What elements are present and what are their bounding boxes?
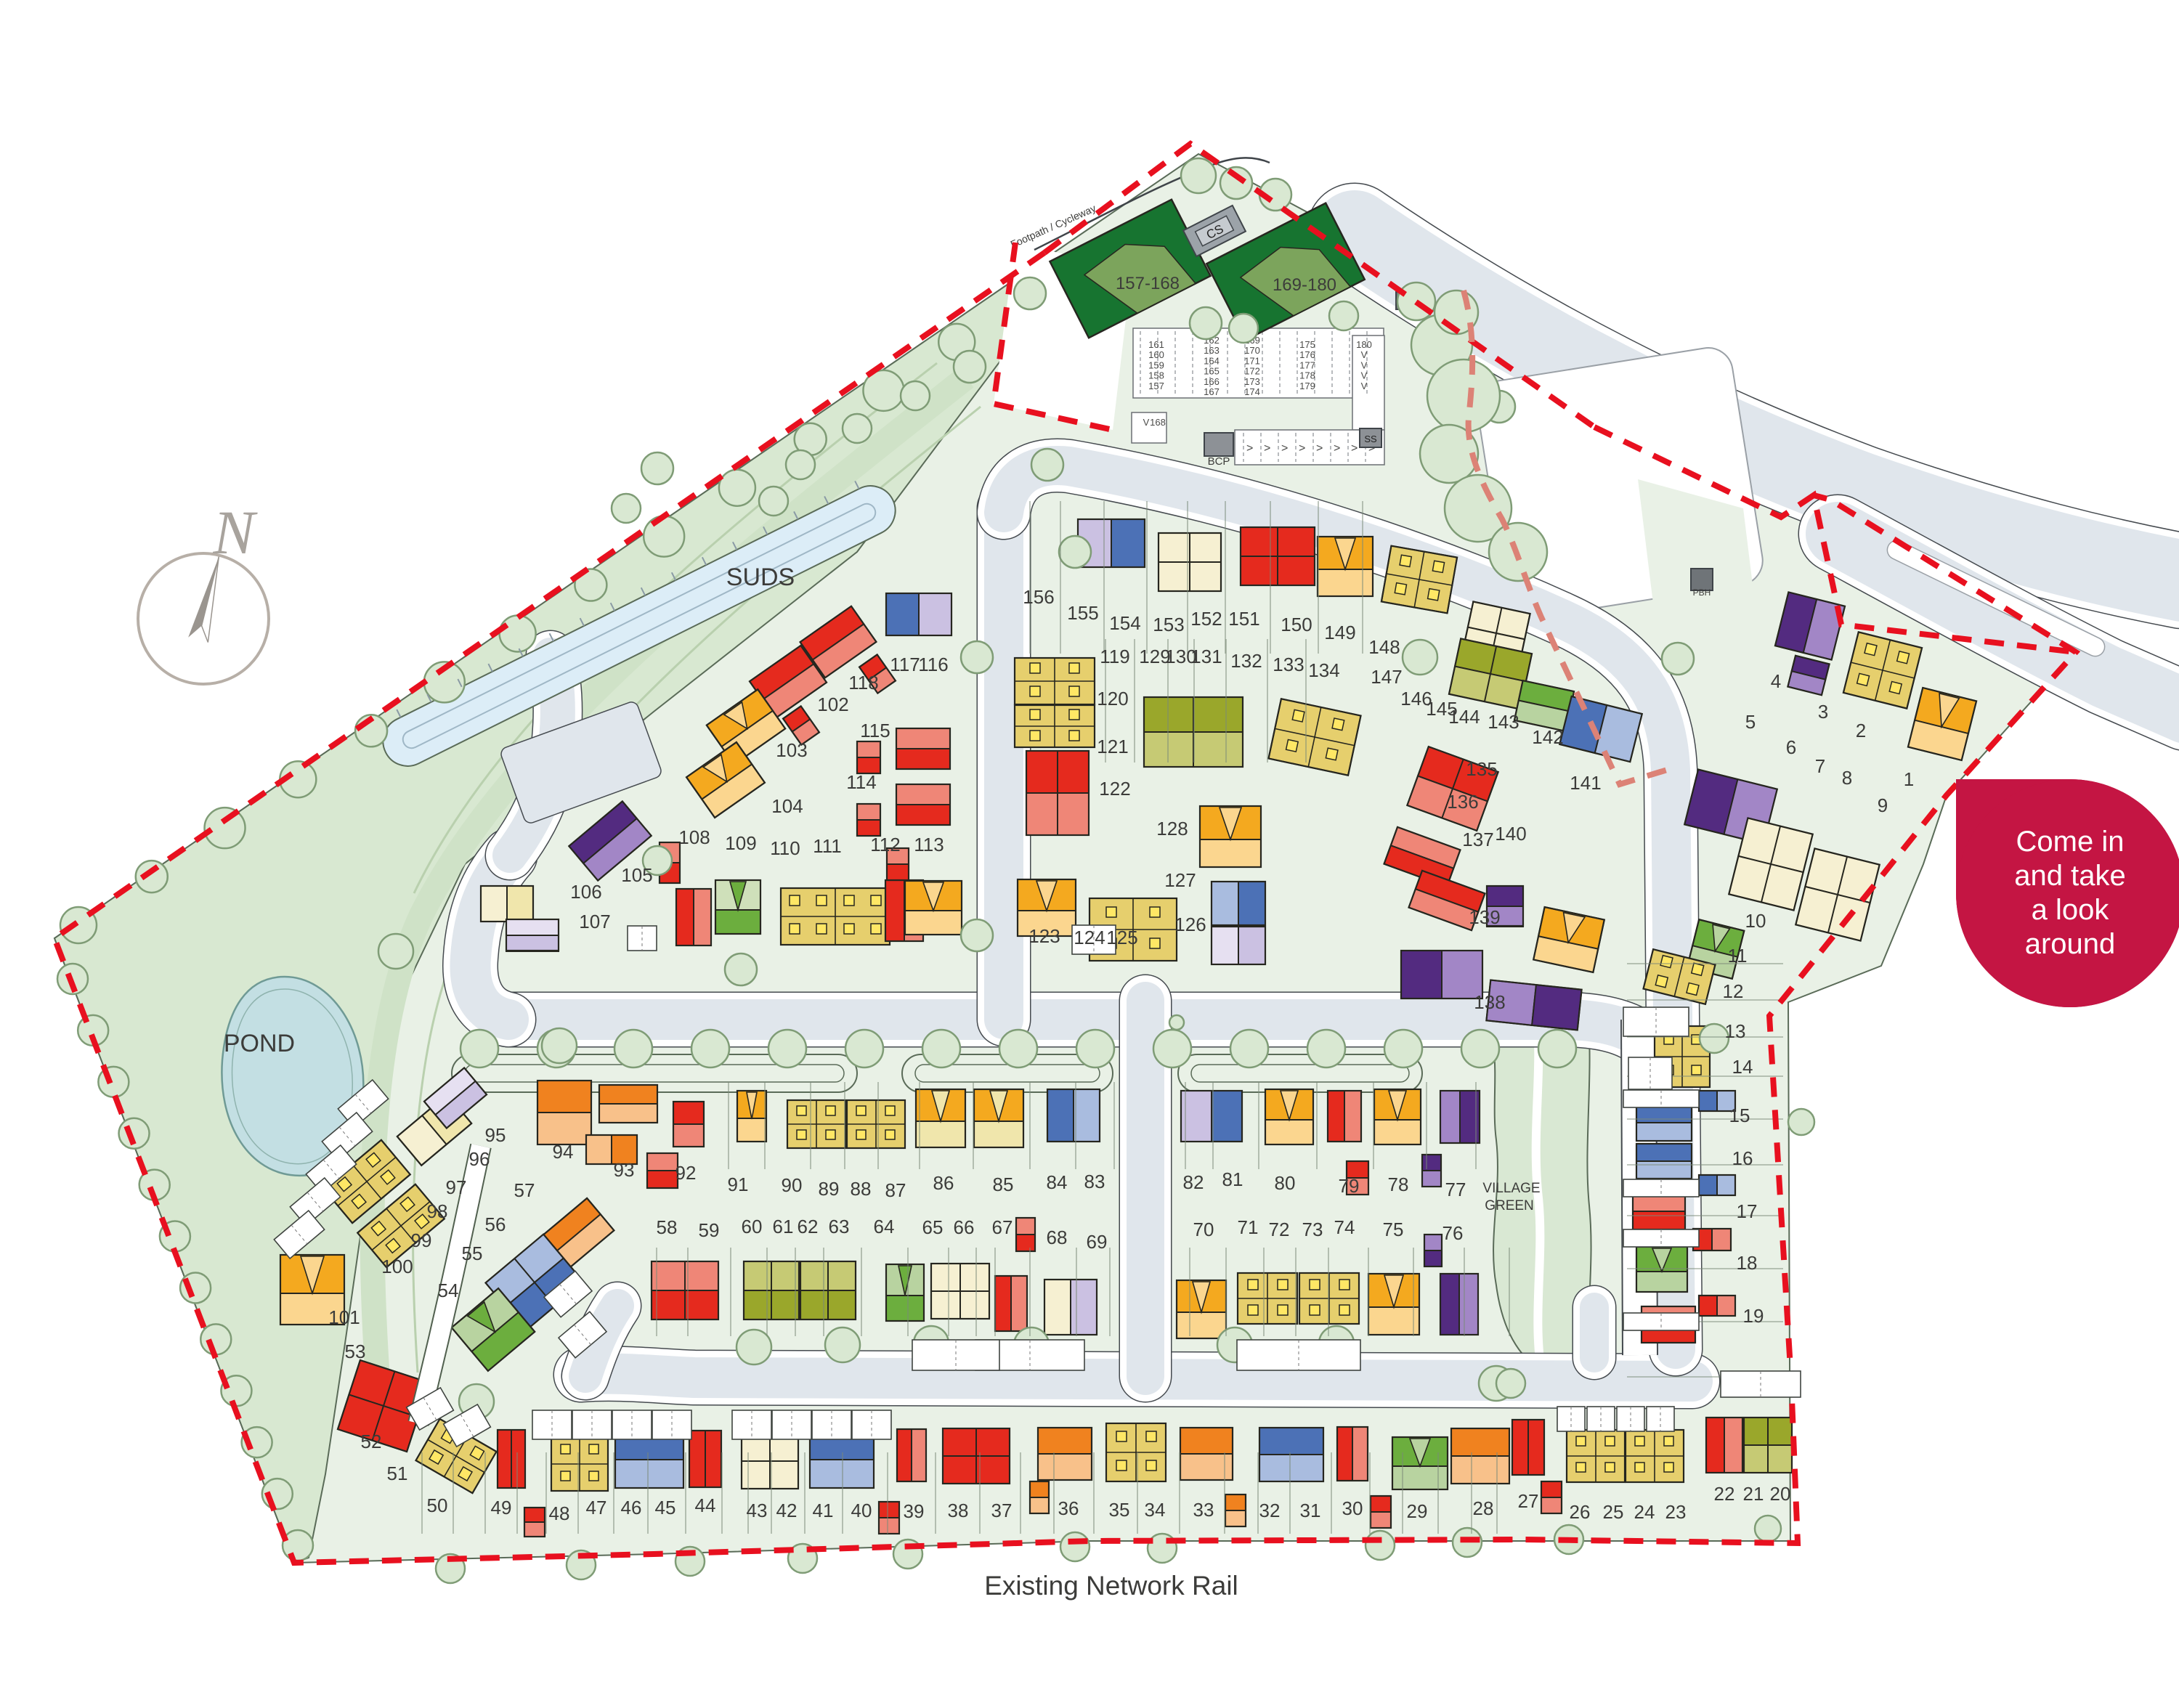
svg-text:N: N — [212, 497, 258, 567]
svg-text:100: 100 — [381, 1256, 413, 1277]
svg-text:97: 97 — [446, 1176, 467, 1198]
svg-text:27: 27 — [1518, 1490, 1539, 1512]
svg-text:54: 54 — [438, 1280, 459, 1301]
svg-text:>: > — [1299, 442, 1305, 455]
svg-text:90: 90 — [782, 1174, 803, 1196]
svg-text:96: 96 — [469, 1148, 490, 1170]
svg-text:56: 56 — [485, 1213, 506, 1235]
svg-text:122: 122 — [1099, 778, 1130, 800]
svg-text:34: 34 — [1145, 1499, 1166, 1521]
svg-text:148: 148 — [1368, 636, 1400, 658]
svg-text:168: 168 — [1150, 417, 1166, 428]
svg-text:12: 12 — [1723, 980, 1744, 1002]
svg-text:138: 138 — [1474, 991, 1505, 1013]
svg-text:107: 107 — [579, 911, 610, 932]
svg-text:116: 116 — [918, 654, 948, 675]
svg-text:126: 126 — [1174, 914, 1206, 935]
svg-text:103: 103 — [776, 739, 807, 761]
svg-text:43: 43 — [747, 1500, 768, 1521]
svg-text:52: 52 — [361, 1431, 382, 1452]
svg-text:147: 147 — [1371, 666, 1402, 688]
svg-text:25: 25 — [1603, 1501, 1624, 1523]
svg-text:13: 13 — [1725, 1020, 1746, 1042]
svg-text:>: > — [1281, 442, 1288, 455]
svg-text:18: 18 — [1737, 1252, 1758, 1274]
svg-text:99: 99 — [411, 1229, 432, 1251]
svg-text:>: > — [1264, 442, 1270, 455]
svg-text:134: 134 — [1308, 659, 1339, 681]
svg-text:163: 163 — [1204, 345, 1220, 356]
svg-text:26: 26 — [1570, 1501, 1591, 1523]
svg-text:98: 98 — [427, 1200, 448, 1222]
svg-text:23: 23 — [1665, 1501, 1687, 1523]
svg-text:64: 64 — [874, 1216, 895, 1237]
svg-text:146: 146 — [1400, 688, 1432, 709]
svg-text:105: 105 — [621, 864, 652, 886]
svg-text:83: 83 — [1084, 1171, 1105, 1192]
svg-text:71: 71 — [1238, 1216, 1259, 1238]
svg-text:GREEN: GREEN — [1485, 1198, 1534, 1213]
svg-text:110: 110 — [770, 837, 800, 859]
svg-text:135: 135 — [1466, 758, 1497, 780]
svg-text:31: 31 — [1300, 1500, 1321, 1521]
svg-text:19: 19 — [1743, 1305, 1764, 1327]
svg-text:178: 178 — [1299, 370, 1315, 381]
svg-text:174: 174 — [1244, 386, 1260, 397]
svg-text:131: 131 — [1190, 646, 1222, 667]
svg-text:87: 87 — [885, 1179, 906, 1201]
svg-text:>: > — [1334, 442, 1340, 455]
svg-text:63: 63 — [829, 1216, 850, 1237]
svg-text:and take: and take — [2014, 860, 2125, 892]
svg-text:91: 91 — [728, 1174, 749, 1195]
svg-text:9: 9 — [1878, 794, 1888, 816]
svg-text:101: 101 — [328, 1306, 360, 1328]
svg-text:179: 179 — [1299, 381, 1315, 391]
svg-text:53: 53 — [345, 1341, 366, 1362]
svg-text:154: 154 — [1109, 612, 1140, 634]
svg-text:118: 118 — [848, 672, 878, 694]
svg-text:160: 160 — [1148, 349, 1164, 360]
svg-text:58: 58 — [657, 1216, 678, 1238]
svg-text:1: 1 — [1904, 768, 1914, 790]
svg-text:66: 66 — [954, 1216, 975, 1238]
svg-text:89: 89 — [819, 1178, 840, 1200]
svg-text:2: 2 — [1856, 720, 1866, 741]
svg-text:V: V — [1361, 349, 1368, 360]
svg-text:180: 180 — [1356, 339, 1372, 350]
svg-text:72: 72 — [1269, 1219, 1290, 1240]
svg-text:177: 177 — [1299, 359, 1315, 370]
svg-text:140: 140 — [1495, 823, 1526, 845]
svg-text:152: 152 — [1190, 608, 1222, 630]
svg-text:104: 104 — [771, 795, 803, 817]
svg-text:45: 45 — [655, 1497, 676, 1518]
svg-text:>: > — [1316, 442, 1323, 455]
svg-text:21: 21 — [1743, 1483, 1764, 1505]
svg-text:>: > — [1351, 442, 1358, 455]
svg-text:a look: a look — [2032, 894, 2110, 926]
svg-text:74: 74 — [1334, 1216, 1355, 1238]
svg-text:108: 108 — [678, 826, 710, 848]
svg-text:84: 84 — [1047, 1171, 1068, 1193]
svg-text:30: 30 — [1342, 1497, 1363, 1519]
svg-text:150: 150 — [1281, 614, 1312, 635]
svg-text:39: 39 — [904, 1500, 925, 1522]
svg-text:125: 125 — [1106, 927, 1137, 948]
svg-text:170: 170 — [1244, 345, 1260, 356]
svg-text:POND: POND — [224, 1030, 295, 1057]
svg-text:156: 156 — [1023, 586, 1054, 608]
svg-text:117: 117 — [890, 654, 920, 675]
svg-text:V: V — [1143, 417, 1150, 428]
svg-text:109: 109 — [725, 832, 756, 854]
svg-text:82: 82 — [1183, 1171, 1204, 1193]
svg-text:137: 137 — [1462, 829, 1493, 850]
svg-text:Come in: Come in — [2016, 826, 2125, 858]
svg-text:151: 151 — [1228, 608, 1259, 630]
svg-text:29: 29 — [1407, 1500, 1428, 1522]
svg-text:60: 60 — [742, 1216, 763, 1237]
svg-text:38: 38 — [948, 1500, 969, 1521]
svg-text:173: 173 — [1244, 376, 1260, 387]
svg-text:164: 164 — [1204, 355, 1220, 366]
svg-text:61: 61 — [773, 1216, 794, 1237]
svg-text:86: 86 — [933, 1172, 954, 1194]
svg-text:85: 85 — [993, 1174, 1014, 1195]
svg-text:128: 128 — [1156, 818, 1188, 839]
svg-text:155: 155 — [1067, 602, 1098, 624]
svg-text:172: 172 — [1244, 366, 1260, 377]
svg-text:62: 62 — [798, 1216, 819, 1237]
svg-text:5: 5 — [1745, 711, 1756, 733]
svg-text:65: 65 — [922, 1216, 944, 1238]
svg-text:V: V — [1361, 370, 1368, 381]
svg-text:159: 159 — [1148, 359, 1164, 370]
svg-text:11: 11 — [1728, 945, 1748, 967]
svg-text:124: 124 — [1074, 927, 1105, 948]
svg-text:22: 22 — [1714, 1483, 1735, 1505]
svg-text:166: 166 — [1204, 376, 1220, 387]
svg-text:49: 49 — [491, 1497, 512, 1518]
svg-text:33: 33 — [1193, 1499, 1214, 1521]
svg-text:78: 78 — [1388, 1174, 1409, 1195]
svg-text:165: 165 — [1204, 366, 1220, 377]
svg-text:111: 111 — [813, 835, 842, 857]
svg-text:120: 120 — [1097, 688, 1128, 709]
svg-text:V: V — [1361, 381, 1368, 391]
svg-text:42: 42 — [776, 1500, 798, 1521]
svg-text:102: 102 — [817, 694, 848, 715]
svg-text:79: 79 — [1339, 1175, 1360, 1197]
svg-text:94: 94 — [553, 1141, 574, 1163]
svg-text:4: 4 — [1771, 670, 1781, 692]
svg-text:95: 95 — [485, 1124, 506, 1146]
svg-text:20: 20 — [1770, 1483, 1791, 1505]
svg-text:121: 121 — [1097, 736, 1128, 757]
svg-text:112: 112 — [870, 834, 900, 855]
svg-text:37: 37 — [991, 1500, 1013, 1521]
svg-text:169-180: 169-180 — [1273, 275, 1336, 295]
svg-text:119: 119 — [1100, 646, 1129, 667]
svg-text:88: 88 — [851, 1178, 872, 1200]
svg-text:35: 35 — [1109, 1499, 1130, 1521]
svg-text:153: 153 — [1153, 614, 1184, 635]
svg-text:75: 75 — [1383, 1219, 1404, 1240]
svg-text:48: 48 — [549, 1502, 570, 1524]
svg-text:55: 55 — [462, 1243, 483, 1264]
svg-text:41: 41 — [813, 1500, 834, 1521]
svg-text:17: 17 — [1737, 1200, 1758, 1222]
svg-text:139: 139 — [1469, 906, 1500, 928]
svg-text:149: 149 — [1324, 622, 1355, 643]
svg-text:115: 115 — [860, 720, 890, 741]
svg-text:113: 113 — [914, 834, 944, 855]
svg-text:6: 6 — [1786, 736, 1796, 758]
svg-text:V: V — [1361, 359, 1368, 370]
svg-text:24: 24 — [1634, 1501, 1655, 1523]
svg-text:51: 51 — [387, 1463, 408, 1484]
svg-text:161: 161 — [1148, 339, 1164, 350]
svg-text:167: 167 — [1204, 386, 1220, 397]
svg-text:32: 32 — [1259, 1500, 1281, 1521]
svg-text:176: 176 — [1299, 349, 1315, 360]
svg-text:143: 143 — [1488, 711, 1519, 733]
svg-text:157: 157 — [1148, 381, 1164, 391]
svg-text:158: 158 — [1148, 370, 1164, 381]
svg-text:67: 67 — [992, 1216, 1013, 1238]
svg-text:7: 7 — [1815, 755, 1825, 777]
svg-text:80: 80 — [1275, 1172, 1296, 1194]
svg-text:142: 142 — [1532, 726, 1563, 748]
svg-text:127: 127 — [1164, 869, 1196, 891]
svg-text:50: 50 — [427, 1494, 448, 1516]
svg-text:81: 81 — [1222, 1168, 1243, 1190]
svg-text:Existing Network Rail: Existing Network Rail — [984, 1571, 1238, 1601]
svg-text:73: 73 — [1302, 1219, 1323, 1240]
svg-text:>: > — [1246, 442, 1253, 455]
svg-text:47: 47 — [586, 1497, 607, 1518]
svg-text:SUDS: SUDS — [726, 564, 795, 591]
svg-text:3: 3 — [1818, 701, 1828, 723]
svg-text:77: 77 — [1445, 1179, 1466, 1200]
svg-text:68: 68 — [1047, 1227, 1068, 1248]
svg-text:15: 15 — [1729, 1105, 1750, 1126]
svg-text:PBH: PBH — [1693, 587, 1711, 598]
svg-text:92: 92 — [675, 1162, 697, 1184]
svg-text:157-168: 157-168 — [1116, 274, 1180, 293]
svg-text:36: 36 — [1058, 1497, 1079, 1519]
svg-text:BCP: BCP — [1208, 455, 1230, 468]
svg-text:57: 57 — [514, 1179, 535, 1201]
svg-text:175: 175 — [1299, 339, 1315, 350]
svg-text:44: 44 — [695, 1494, 716, 1516]
svg-text:16: 16 — [1732, 1147, 1753, 1169]
svg-text:132: 132 — [1230, 650, 1262, 672]
svg-text:46: 46 — [621, 1497, 642, 1518]
svg-text:40: 40 — [851, 1500, 872, 1521]
svg-text:14: 14 — [1732, 1056, 1753, 1078]
svg-text:106: 106 — [570, 881, 601, 903]
svg-text:70: 70 — [1193, 1219, 1214, 1240]
svg-text:10: 10 — [1745, 910, 1766, 932]
svg-text:8: 8 — [1842, 767, 1852, 789]
svg-text:171: 171 — [1244, 355, 1260, 366]
svg-text:93: 93 — [614, 1159, 635, 1181]
svg-text:133: 133 — [1273, 654, 1304, 675]
svg-text:69: 69 — [1087, 1231, 1108, 1253]
svg-text:around: around — [2025, 928, 2116, 960]
svg-text:28: 28 — [1473, 1497, 1494, 1519]
svg-text:SS: SS — [1364, 434, 1377, 444]
svg-text:59: 59 — [699, 1219, 720, 1241]
svg-text:76: 76 — [1442, 1222, 1464, 1244]
svg-text:VILLAGE: VILLAGE — [1482, 1181, 1540, 1196]
svg-text:136: 136 — [1447, 791, 1478, 813]
svg-text:123: 123 — [1028, 925, 1060, 947]
svg-text:114: 114 — [846, 771, 876, 793]
svg-text:141: 141 — [1570, 772, 1601, 794]
